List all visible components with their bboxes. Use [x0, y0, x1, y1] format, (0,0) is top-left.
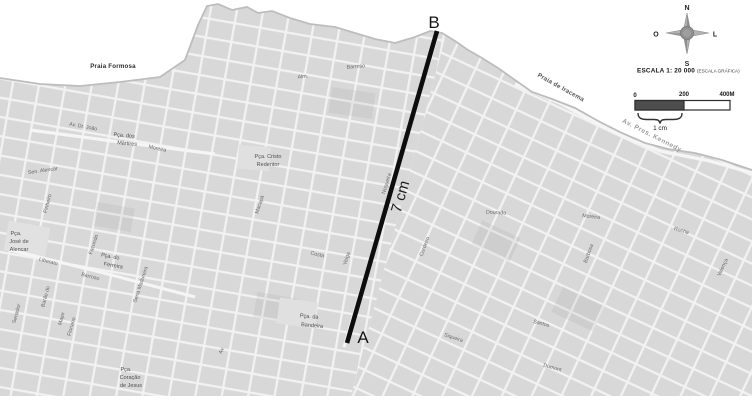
- map-canvas: Praia Formosa Praia de Iracema Av. Pres.…: [0, 0, 752, 400]
- scale-subtitle: (ESCALA GRÁFICA): [697, 68, 740, 74]
- bottom-margin: [0, 396, 752, 400]
- scale-tick-200: 200: [679, 92, 690, 98]
- scale-tick-400: 400M: [719, 92, 734, 98]
- praca-cristo-line1: Pça. Cristo: [255, 154, 282, 160]
- praca-jose-alencar-line3: Alencar: [10, 247, 29, 253]
- point-a-label: A: [357, 328, 369, 347]
- point-b-label: B: [428, 13, 439, 32]
- street-label-dourado: Dourado: [486, 209, 507, 216]
- praca-coracao-line3: de Jesus: [120, 383, 142, 389]
- praca-jose-alencar-line1: Pça.: [10, 231, 21, 237]
- praca-coracao-line1: Pça.: [120, 367, 131, 373]
- scale-cm-label: 1 cm: [653, 125, 667, 132]
- compass-west-label: O: [653, 32, 659, 39]
- praia-formosa-label: Praia Formosa: [90, 63, 136, 70]
- compass-north-label: N: [684, 5, 689, 12]
- praca-coracao-line2: Coração: [120, 375, 141, 381]
- compass-rose: N S O L: [653, 5, 718, 68]
- street-label-alm: Alm.: [297, 74, 308, 81]
- praca-jose-alencar-line2: José de: [9, 239, 28, 245]
- map-exercise-screenshot: Praia Formosa Praia de Iracema Av. Pres.…: [0, 0, 752, 400]
- praca-cristo-line2: Redentor: [257, 162, 280, 168]
- scale-brace: [638, 113, 682, 124]
- scale-title: ESCALA 1: 20 000: [637, 68, 695, 75]
- scale-block: ESCALA 1: 20 000 (ESCALA GRÁFICA) 0 200 …: [633, 68, 740, 133]
- compass-east-label: L: [713, 32, 718, 39]
- compass-center-inner: [683, 29, 691, 37]
- land-mass: [0, 0, 752, 400]
- scale-bar-filled-segment: [635, 101, 684, 111]
- scale-tick-0: 0: [633, 93, 637, 99]
